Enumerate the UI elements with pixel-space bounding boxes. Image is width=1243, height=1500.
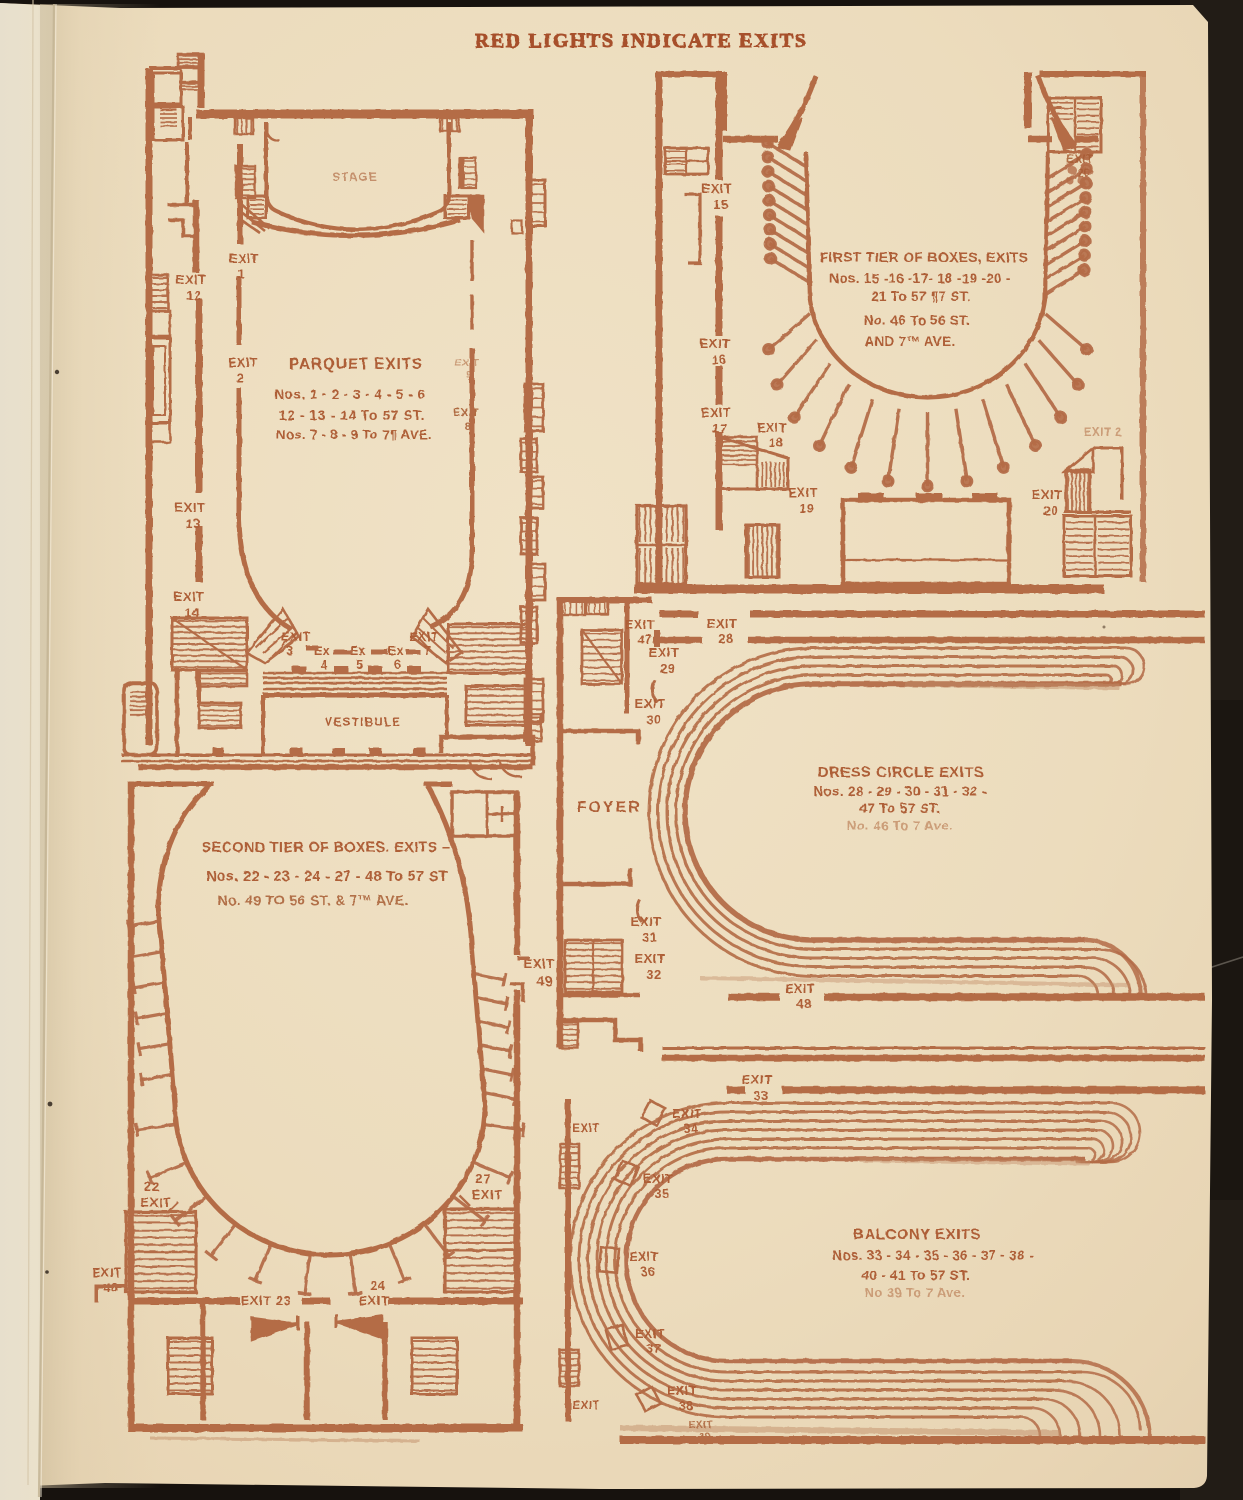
svg-text:EXIT: EXIT [635,951,666,966]
svg-text:19: 19 [800,502,815,516]
svg-text:22: 22 [144,1179,159,1194]
svg-text:EXIT: EXIT [667,1384,697,1398]
svg-text:EXIT: EXIT [631,914,662,929]
svg-text:6: 6 [394,658,401,672]
svg-text:EXIT: EXIT [409,630,439,644]
svg-text:No. 46 To 56 ST.: No. 46 To 56 ST. [864,313,971,328]
svg-text:49: 49 [537,973,554,989]
svg-text:Nos. 22 - 23 - 24 - 27 - 48 T: Nos. 22 - 23 - 24 - 27 - 48 To 57 ST [206,869,448,885]
svg-text:31: 31 [642,930,657,945]
svg-text:35: 35 [655,1187,670,1201]
svg-text:SECOND TIER OF BOXES. EXITS: SECOND TIER OF BOXES. EXITS – [202,840,451,856]
svg-text:4: 4 [320,658,327,672]
svg-text:36: 36 [641,1265,656,1279]
svg-text:7: 7 [424,644,431,658]
svg-text:EXIT: EXIT [649,645,680,660]
svg-text:EXIT: EXIT [455,357,480,369]
svg-text:48: 48 [797,997,812,1011]
svg-text:EXIT: EXIT [788,486,818,500]
svg-text:EXIT: EXIT [281,630,311,644]
svg-text:12: 12 [186,288,201,303]
svg-text:Ex: Ex [388,644,404,658]
svg-text:EXIT: EXIT [472,1187,503,1202]
svg-text:FOYER: FOYER [576,799,641,816]
svg-text:29: 29 [660,661,675,676]
svg-text:40 - 41 To 57 ST.: 40 - 41 To 57 ST. [862,1268,970,1283]
svg-text:RED LIGHTS INDICATE EXITS: RED LIGHTS INDICATE EXITS [475,30,808,52]
svg-text:12 - 13 - 14 To 57 ST.: 12 - 13 - 14 To 57 ST. [279,407,425,423]
svg-text:3: 3 [286,644,293,658]
svg-text:EXIT: EXIT [629,1250,659,1264]
svg-text:16: 16 [711,352,726,367]
svg-text:EXIT: EXIT [176,272,207,287]
svg-text:47 To 57 ST.: 47 To 57 ST. [859,801,940,816]
svg-text:EXIT: EXIT [635,696,666,711]
svg-text:EXIT: EXIT [701,405,732,420]
svg-text:5: 5 [356,658,363,672]
svg-text:EXIT: EXIT [625,618,655,632]
svg-text:21 To 57 ¶7 ST.: 21 To 57 ¶7 ST. [871,289,971,304]
svg-text:32: 32 [646,967,661,982]
svg-text:No. 46 To 7 Ave.: No. 46 To 7 Ave. [847,818,954,833]
svg-text:17: 17 [712,421,727,436]
svg-text:Nos. 1 - 2 - 3 - 4 - 5 - 6: Nos. 1 - 2 - 3 - 4 - 5 - 6 [274,387,425,402]
svg-text:EXIT: EXIT [174,589,205,604]
svg-text:2: 2 [236,371,243,385]
svg-text:30: 30 [646,712,661,727]
svg-text:37: 37 [647,1342,662,1356]
svg-text:18: 18 [769,436,784,450]
svg-text:EXIT: EXIT [672,1107,702,1121]
svg-text:EXIT: EXIT [689,1419,714,1431]
svg-text:EXIT: EXIT [141,1195,172,1210]
svg-text:DRESS CIRCLE EXITS: DRESS CIRCLE EXITS [818,764,984,781]
svg-text:EXIT: EXIT [228,356,258,370]
svg-text:VESTIBULE: VESTIBULE [325,717,401,729]
svg-text:EXIT: EXIT [1066,154,1093,166]
svg-text:No. 49 TO 56 ST. & 7™ AVE.: No. 49 TO 56 ST. & 7™ AVE. [217,892,408,908]
svg-text:EXIT: EXIT [1032,487,1063,502]
svg-text:AND 7™ AVE.: AND 7™ AVE. [864,334,955,349]
svg-text:EXIT: EXIT [229,252,259,266]
svg-text:34: 34 [684,1122,699,1136]
svg-text:FIRST TIER OF BOXES, EXITS: FIRST TIER OF BOXES, EXITS [820,249,1029,265]
svg-text:EXIT 2: EXIT 2 [1084,427,1122,439]
svg-text:Ex: Ex [350,644,366,658]
svg-text:Nos. 7 - 8 - 9 To 7¶ AVE.: Nos. 7 - 8 - 9 To 7¶ AVE. [276,427,432,442]
svg-text:33: 33 [753,1088,768,1103]
svg-text:Nos. 33 - 34 - 35 - 36 - 37 -: Nos. 33 - 34 - 35 - 36 - 37 - 38 - [832,1248,1034,1263]
svg-text:15: 15 [713,197,728,212]
svg-text:EXIT: EXIT [757,421,787,435]
svg-text:EXIT: EXIT [572,1123,600,1135]
svg-text:EXIT: EXIT [702,181,733,196]
svg-text:Nos. 28 - 29 - 30 - 31 - 32 -: Nos. 28 - 29 - 30 - 31 - 32 - [813,784,986,799]
svg-text:EXIT: EXIT [92,1266,122,1280]
svg-text:No 39 To 7 Ave.: No 39 To 7 Ave. [865,1285,966,1300]
svg-text:EXIT 23: EXIT 23 [241,1293,291,1308]
svg-text:EXIT: EXIT [635,1327,665,1341]
svg-text:20: 20 [1043,503,1058,518]
svg-text:Nos. 15 -16 -17- 18 -19 -20 -: Nos. 15 -16 -17- 18 -19 -20 - [829,271,1010,286]
svg-text:27: 27 [475,1171,490,1186]
svg-text:38: 38 [679,1399,694,1413]
svg-text:PARQUET EXITS: PARQUET EXITS [289,356,423,373]
svg-text:STAGE: STAGE [332,170,377,184]
svg-text:EXIT: EXIT [742,1072,773,1087]
svg-text:BALCONY EXITS: BALCONY EXITS [853,1226,981,1243]
svg-text:1: 1 [237,267,244,281]
svg-text:28: 28 [718,631,733,646]
svg-text:EXIT: EXIT [700,336,731,351]
svg-text:13: 13 [185,516,200,531]
svg-text:EXIT: EXIT [175,500,206,515]
svg-text:EXIT: EXIT [453,407,479,419]
svg-text:EXIT: EXIT [785,982,815,996]
svg-text:EXIT: EXIT [359,1293,390,1308]
svg-text:24: 24 [370,1278,386,1293]
svg-text:EXIT: EXIT [643,1172,673,1186]
svg-text:EXIT: EXIT [707,616,738,631]
svg-text:EXIT: EXIT [572,1400,600,1412]
